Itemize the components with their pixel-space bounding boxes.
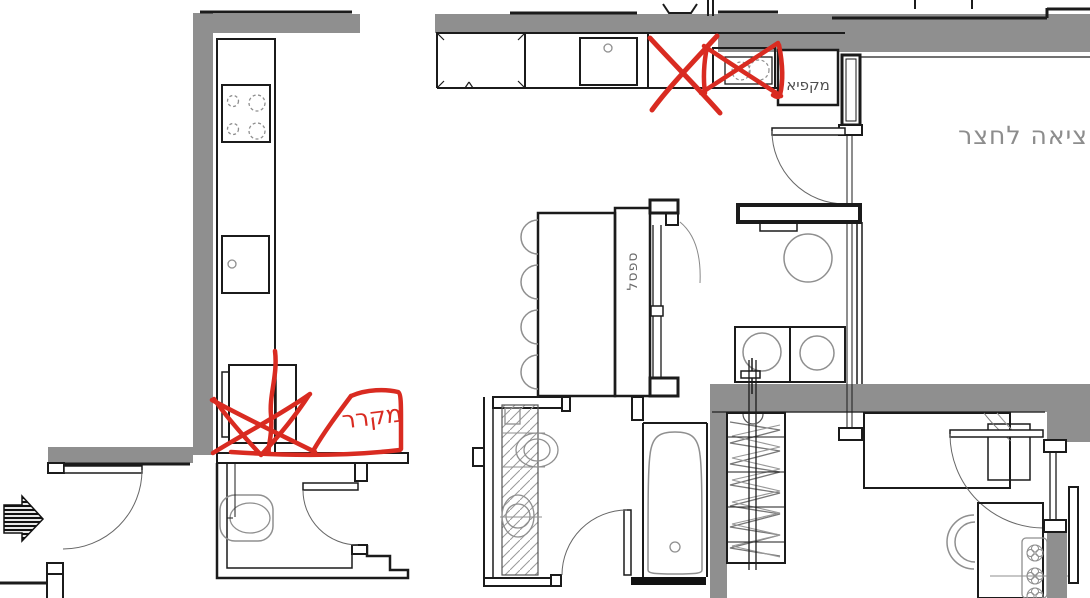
exterior-walls — [48, 0, 1090, 598]
freezer-label: מקפיא — [779, 76, 837, 94]
chairs — [521, 220, 538, 389]
wc-room — [217, 453, 408, 578]
room-door-leaf — [950, 430, 1043, 437]
faucet-icon — [604, 44, 612, 52]
door-swing-curve — [680, 222, 700, 283]
left-kitchen — [217, 39, 296, 455]
boiler-icon — [784, 234, 832, 282]
yard-door-arc — [772, 131, 845, 204]
left-counter — [217, 39, 275, 455]
bench — [615, 208, 650, 396]
faucet-icon — [741, 371, 760, 378]
room-door-arc — [950, 434, 1043, 528]
right-room — [864, 413, 1078, 598]
window — [1069, 487, 1078, 583]
entry-arrow-icon — [4, 496, 43, 541]
bathroom-door-leaf — [624, 510, 631, 575]
sink-left — [222, 236, 269, 293]
bathtub-icon — [648, 432, 702, 574]
solid-wall — [631, 577, 706, 585]
dining-area — [521, 200, 700, 396]
cabinet-ticks — [437, 33, 525, 88]
wc-door-leaf — [303, 483, 358, 490]
bench-label: ספסל — [625, 241, 641, 301]
chair-icon — [947, 515, 975, 569]
bathroom — [473, 397, 707, 586]
wc-door-arc — [303, 490, 358, 545]
cooktop-burners-icon — [228, 95, 266, 139]
faucet-icon — [228, 260, 236, 268]
sink-middle — [580, 38, 637, 85]
dining-table — [538, 213, 615, 396]
entry-door-arc — [63, 470, 142, 549]
vanity-hatch — [502, 405, 538, 575]
gas-burners-icon — [1027, 545, 1043, 598]
yard-exit-label: ציאה לחצר — [912, 121, 1088, 150]
yard-door-leaf — [772, 128, 845, 135]
hob-middle — [713, 48, 775, 88]
laundry-room — [735, 205, 862, 394]
entry-door-leaf — [64, 466, 142, 473]
entry — [0, 463, 142, 598]
bathroom-door-arc — [562, 510, 627, 575]
floor-plan-svg — [0, 0, 1090, 598]
floor-plan: ציאה לחצר מקפיא ספסל מקרר — [0, 0, 1090, 598]
dryer — [790, 327, 845, 382]
cutoff-sink-icon — [663, 4, 697, 13]
